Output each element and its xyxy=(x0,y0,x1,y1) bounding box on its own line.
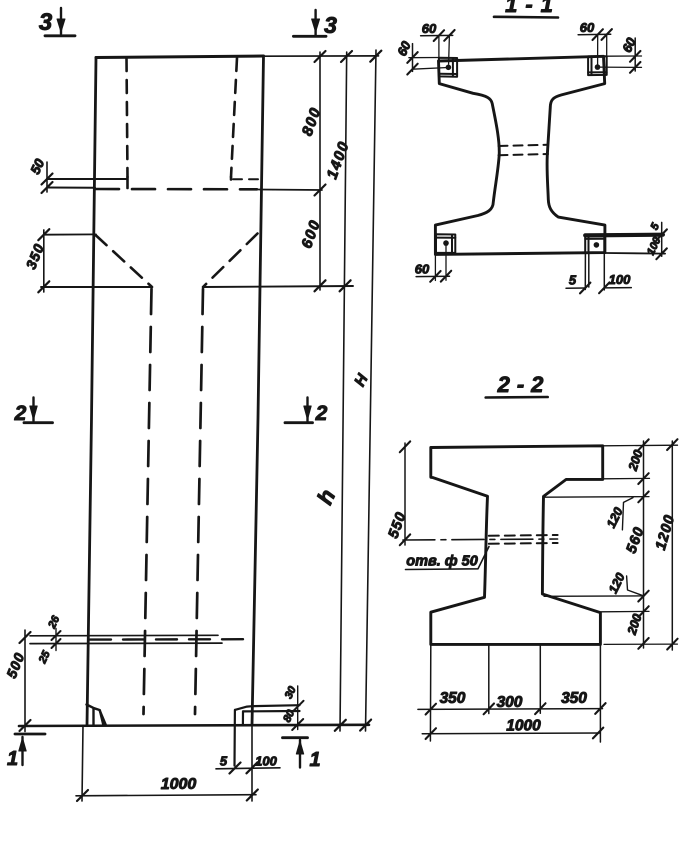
svg-text:5: 5 xyxy=(220,754,228,769)
svg-text:120: 120 xyxy=(606,571,628,596)
svg-text:60: 60 xyxy=(580,20,595,35)
svg-text:550: 550 xyxy=(386,510,410,541)
svg-text:50: 50 xyxy=(27,156,47,176)
svg-text:800: 800 xyxy=(299,105,325,139)
svg-text:5: 5 xyxy=(649,221,663,232)
svg-text:H: H xyxy=(351,371,372,390)
svg-text:60: 60 xyxy=(422,21,437,36)
svg-text:1: 1 xyxy=(309,749,320,771)
svg-text:1000: 1000 xyxy=(506,718,541,735)
svg-text:560: 560 xyxy=(624,525,648,556)
svg-text:5: 5 xyxy=(569,273,577,288)
svg-text:1000: 1000 xyxy=(161,776,197,793)
svg-text:1400: 1400 xyxy=(324,139,353,182)
svg-text:100: 100 xyxy=(255,754,277,769)
svg-text:60: 60 xyxy=(415,262,430,277)
svg-text:300: 300 xyxy=(497,694,523,711)
svg-text:200: 200 xyxy=(625,612,645,637)
svg-text:2-2: 2-2 xyxy=(497,372,551,397)
svg-text:500: 500 xyxy=(3,650,28,680)
svg-text:1-1: 1-1 xyxy=(505,0,561,17)
svg-text:200: 200 xyxy=(626,448,646,473)
svg-text:60: 60 xyxy=(394,38,414,58)
svg-text:350: 350 xyxy=(561,690,587,707)
svg-text:отв. ф 50: отв. ф 50 xyxy=(406,554,478,570)
svg-text:h: h xyxy=(312,485,340,508)
svg-text:1200: 1200 xyxy=(653,513,678,552)
svg-text:350: 350 xyxy=(440,690,466,707)
svg-text:3: 3 xyxy=(324,12,337,38)
svg-text:100: 100 xyxy=(609,272,631,287)
svg-text:26: 26 xyxy=(46,613,63,631)
svg-text:25: 25 xyxy=(36,648,53,666)
svg-text:60: 60 xyxy=(619,35,639,55)
svg-text:1: 1 xyxy=(7,748,18,770)
svg-text:30: 30 xyxy=(283,684,299,701)
svg-text:2: 2 xyxy=(315,402,328,425)
svg-text:3: 3 xyxy=(39,9,53,36)
